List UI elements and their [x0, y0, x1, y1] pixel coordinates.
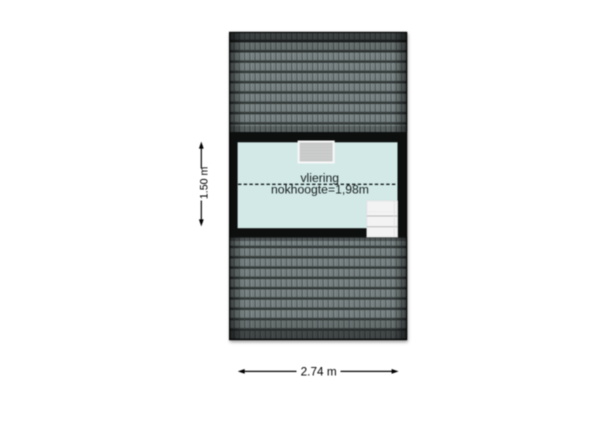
svg-text:nokhoogte=1,98m: nokhoogte=1,98m	[271, 183, 369, 197]
svg-text:1.50 m: 1.50 m	[198, 167, 210, 200]
svg-text:2.74 m: 2.74 m	[301, 364, 337, 378]
